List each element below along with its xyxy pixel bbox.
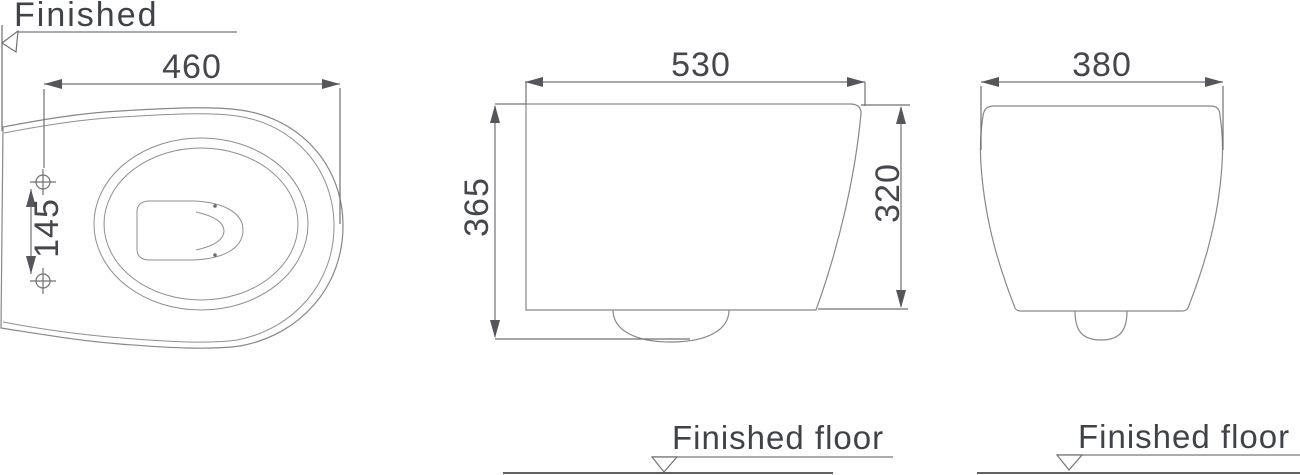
level-triangle-icon [1057,455,1082,470]
dim-365-value: 365 [458,177,496,237]
side-view-body [526,104,861,310]
fixing-hole-top [30,169,56,195]
technical-drawing-canvas: Finished 460 [0,0,1300,475]
dimension-460: 460 [44,48,340,224]
side-view-trap [613,310,729,342]
toilet-dimension-drawing: Finished 460 [0,0,1300,475]
finished-floor-label: Finished floor [672,419,884,456]
finished-wall-arrow-icon [2,31,18,52]
finished-floor-right: Finished floor [977,418,1300,473]
finished-floor-label: Finished floor [1078,418,1290,455]
dimension-365: 365 [458,104,690,339]
finished-floor-middle: Finished floor [503,419,893,473]
dim-145-value: 145 [28,198,66,258]
dimension-530: 530 [525,46,865,106]
water-area-inner-arc [196,212,224,250]
front-view-outlet [1075,311,1127,340]
dimension-380: 380 [981,46,1223,150]
finished-wall-label: Finished [14,0,159,34]
dim-530-value: 530 [671,46,731,84]
seat-ring-inner [104,148,298,300]
water-area-outline [137,201,243,260]
fixing-hole-bottom [30,268,56,294]
side-view: 530 365 320 [458,46,910,342]
front-view-body [980,106,1222,311]
seat-ring-outer [94,138,308,310]
seat-bumper-dot [213,204,217,208]
dim-460-value: 460 [162,48,222,86]
seat-bumper-dot [213,253,217,257]
level-triangle-icon [652,457,677,472]
front-view: 380 [980,46,1223,340]
dim-320-value: 320 [869,163,907,223]
dimension-145: 145 [26,189,66,274]
top-view: Finished 460 [1,0,343,348]
dim-380-value: 380 [1072,46,1132,84]
dimension-320: 320 [818,105,910,309]
